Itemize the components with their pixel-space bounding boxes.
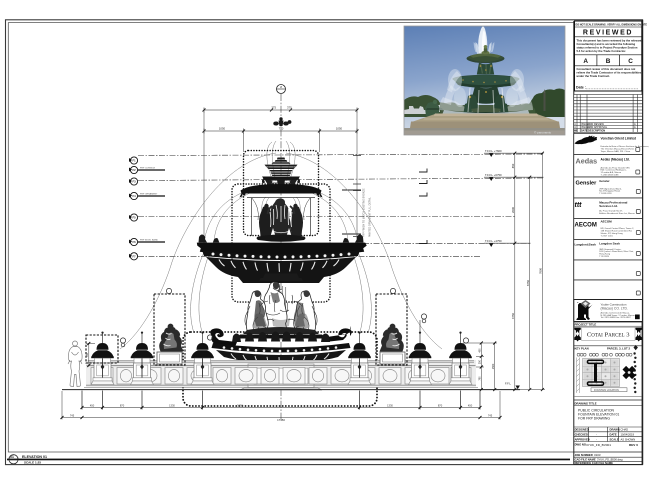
svg-text:450: 450 (468, 403, 473, 407)
svg-text:1050: 1050 (219, 127, 226, 131)
svg-text:KEY PLAN: KEY PLAN (575, 347, 589, 351)
svg-text:COTAI PARCEL 3: COTAI PARCEL 3 (587, 332, 630, 339)
svg-text:Services Ltd.: Services Ltd. (599, 204, 618, 208)
svg-text:Edifício Residencial Kam Lei,: Edifício Residencial Kam Lei, Macau (599, 213, 635, 215)
svg-text:DRAWING TITLE: DRAWING TITLE (575, 401, 597, 405)
svg-text:1560: 1560 (492, 363, 495, 369)
svg-text:Tel: 2870 0889 Fax: 2870 0887: Tel: 2870 0889 Fax: 2870 0887 (601, 317, 632, 319)
svg-text:C: C (628, 58, 633, 65)
svg-text:ELEVATION 01: ELEVATION 01 (22, 455, 47, 459)
svg-text:under the Trade Contract.: under the Trade Contract. (577, 74, 611, 78)
svg-text:PARCEL 3, LOT 2: PARCEL 3, LOT 2 (607, 347, 630, 351)
svg-text:T 1033 0128: T 1033 0128 (599, 193, 612, 195)
svg-text:1050: 1050 (336, 127, 343, 131)
svg-text:T.F.F.L +4750: T.F.F.L +4750 (485, 239, 502, 243)
svg-text:DRAWN: DRAWN (610, 428, 620, 432)
svg-text:1330: 1330 (169, 403, 175, 407)
svg-text:status referred to in Project: status referred to in Project Procedure … (577, 46, 638, 50)
svg-text:T.F.F.L +6750: T.F.F.L +6750 (485, 173, 502, 177)
svg-text:This document has been reviewe: This document has been reviewed by the r… (577, 39, 642, 43)
svg-text:PROJECT TITLE: PROJECT TITLE (575, 322, 597, 326)
svg-text:REV 0: REV 0 (629, 443, 638, 447)
svg-text:1330: 1330 (387, 403, 393, 407)
svg-text:DESCRIPTION: DESCRIPTION (588, 130, 605, 133)
svg-text:T +853 2833 1088: T +853 2833 1088 (601, 175, 620, 177)
svg-text:A: A (583, 58, 588, 65)
svg-text:SCALE: SCALE (610, 437, 619, 441)
svg-text:T.F.F.L +7600: T.F.F.L +7600 (485, 149, 502, 153)
svg-text:© panoramio: © panoramio (534, 131, 552, 135)
svg-text:01: 01 (10, 455, 14, 459)
svg-text:FOR FRP DRAWING: FOR FRP DRAWING (578, 416, 610, 420)
svg-text:APPROVED: APPROVED (575, 437, 590, 441)
svg-text:375: 375 (271, 106, 276, 110)
svg-text:T 2317 1001: T 2317 1001 (601, 235, 614, 237)
svg-text:DESIGNED: DESIGNED (575, 428, 589, 432)
svg-text:DATE: DATE (581, 130, 588, 133)
svg-text:DATE: DATE (610, 433, 617, 437)
svg-text:F.F.L: F.F.L (505, 382, 511, 386)
svg-text:Gensler: Gensler (599, 179, 610, 183)
svg-text:2000: 2000 (511, 207, 515, 213)
svg-text:870: 870 (438, 403, 443, 407)
svg-text:-: - (596, 434, 597, 437)
svg-text:5.4 for action by the Trade Co: 5.4 for action by the Trade Contractor. (577, 49, 627, 53)
svg-text:Taipa, Macau SAR, P.R. China: Taipa, Macau SAR, P.R. China (601, 150, 631, 153)
svg-text:-: - (596, 438, 597, 441)
svg-text:745: 745 (488, 413, 493, 417)
svg-text:760: 760 (479, 376, 482, 381)
svg-text:FOUNTAIN LOCATION: FOUNTAIN LOCATION (594, 389, 619, 392)
svg-text:3103: 3103 (594, 453, 601, 457)
svg-text:(Macau) CO. LTD.: (Macau) CO. LTD. (601, 307, 629, 311)
svg-text:REVIEWED: REVIEWED (583, 30, 633, 37)
svg-text:850: 850 (511, 163, 515, 168)
svg-text:B: B (606, 58, 611, 65)
svg-text:700: 700 (279, 127, 284, 131)
svg-text:FRP CORNICE: FRP CORNICE (140, 168, 156, 170)
svg-text:Venetian Orient Limited: Venetian Orient Limited (601, 137, 637, 141)
svg-text:CHECKED: CHECKED (575, 433, 588, 437)
svg-text:350: 350 (86, 352, 89, 357)
svg-text:AS SHOWN: AS SHOWN (621, 437, 636, 441)
svg-text:MK: MK (574, 130, 578, 133)
svg-text:T 28 2825: T 28 2825 (599, 256, 610, 258)
svg-text:450: 450 (479, 348, 482, 353)
svg-text:7600: 7600 (539, 268, 543, 274)
svg-text:6750: 6750 (526, 280, 530, 286)
svg-text:Consultant review of this docu: Consultant review of this document does … (577, 67, 636, 71)
svg-text:Consultants(s) and is accorded: Consultants(s) and is accorded the follo… (577, 42, 636, 46)
svg-text:10/04/2019: 10/04/2019 (621, 433, 635, 437)
svg-text:450: 450 (90, 403, 95, 407)
svg-text:ttt: ttt (575, 202, 583, 209)
svg-text:CHAD: CHAD (621, 428, 629, 432)
svg-text:FRP ORNAMENT: FRP ORNAMENT (140, 193, 158, 196)
svg-text:4750: 4750 (511, 313, 515, 319)
svg-text:PAINTED ORNAMENT FULL DETAIL: PAINTED ORNAMENT FULL DETAIL (369, 197, 372, 237)
svg-text:Gensler: Gensler (576, 180, 598, 186)
svg-text:relieve the Trade Contractor o: relieve the Trade Contractor of its resp… (577, 70, 642, 74)
svg-text:375: 375 (287, 106, 292, 110)
svg-text:Aedas (Macau) Ltd.: Aedas (Macau) Ltd. (601, 157, 630, 161)
svg-text:350: 350 (479, 359, 482, 364)
svg-text:CAD FILE NAME: CAD FILE NAME (575, 457, 596, 461)
svg-text:Aedas: Aedas (576, 157, 598, 166)
svg-text:3YUK_FD_BV001: 3YUK_FD_BV001 (586, 443, 611, 447)
svg-text:Langdon&Seah: Langdon&Seah (575, 242, 596, 246)
svg-text:JOB NUMBER: JOB NUMBER (575, 453, 593, 457)
svg-text:FRP BOWL BAND: FRP BOWL BAND (140, 239, 158, 242)
svg-text:3YUK_FD_B500.dwg: 3YUK_FD_B500.dwg (597, 457, 623, 461)
svg-text:AECOM: AECOM (601, 220, 613, 224)
svg-text:AECOM: AECOM (575, 223, 597, 229)
svg-text:Date :: Date : (576, 86, 586, 90)
svg-text:DWG NO: DWG NO (575, 443, 586, 447)
svg-text:3450: 3450 (237, 403, 243, 407)
svg-text:Langdon Seah: Langdon Seah (599, 242, 620, 246)
svg-text:17450: 17450 (277, 418, 285, 422)
svg-text:SCALE 1:25: SCALE 1:25 (24, 460, 41, 464)
svg-text:745: 745 (70, 413, 75, 417)
svg-text:870: 870 (120, 403, 125, 407)
svg-text:DO NOT SCALE DRAWING. VERIFY A: DO NOT SCALE DRAWING. VERIFY ALL DIMENSI… (576, 24, 648, 27)
